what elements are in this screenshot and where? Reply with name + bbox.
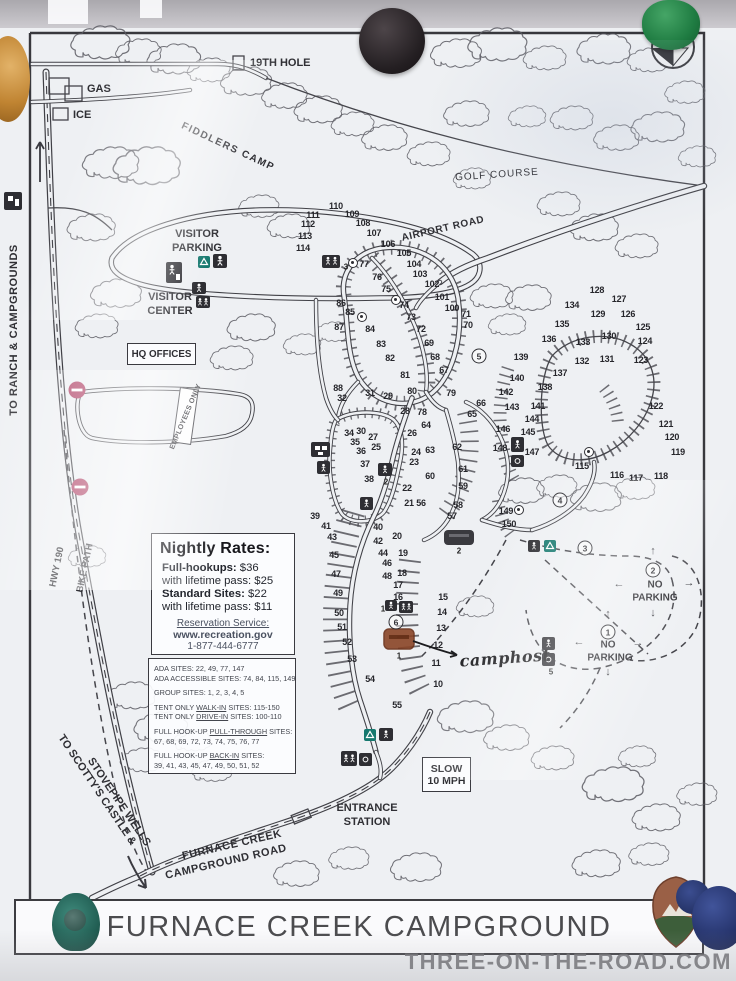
site-number-18: 18: [397, 568, 407, 578]
site-number-61: 61: [458, 464, 468, 474]
info-line: 67, 68, 69, 72, 73, 74, 75, 76, 77: [154, 737, 290, 747]
label-no-parking-1: NO: [601, 640, 616, 651]
restroom-icon: [378, 463, 392, 476]
site-number-48: 48: [382, 571, 392, 581]
site-number-17: 17: [393, 580, 403, 590]
site-number-36: 36: [356, 446, 366, 456]
site-number-50: 50: [334, 608, 344, 618]
visitor-center-icon: [166, 262, 182, 283]
site-number-19: 19: [398, 548, 408, 558]
site-number-26: 26: [407, 428, 417, 438]
site-number-20: 20: [392, 531, 402, 541]
ada-accessible-marker: [357, 312, 367, 322]
reservation-url: www.recreation.gov: [158, 629, 288, 641]
info-line: GROUP SITES: 1, 2, 3, 4, 5: [154, 688, 290, 698]
label-visitor-center: VISITOR: [148, 291, 192, 303]
recycle-icon: [544, 540, 556, 552]
site-number-145: 145: [521, 427, 535, 437]
to-ranch-arrow: [36, 142, 44, 182]
site-number-43: 43: [327, 532, 337, 542]
site-number-140: 140: [510, 373, 524, 383]
ada-accessible-marker: [348, 258, 358, 268]
label-entrance-station-2: STATION: [344, 816, 391, 828]
rates-title: Nightly Rates:: [160, 540, 288, 558]
restroom-icon: [192, 282, 206, 294]
site-number-63: 63: [425, 445, 435, 455]
site-number-134: 134: [565, 300, 579, 310]
site-info-box: ADA SITES: 22, 49, 77, 147 ADA ACCESSIBL…: [148, 658, 296, 774]
slow-10mph-sign: SLOW 10 MPH: [422, 757, 471, 792]
site-number-82: 82: [385, 353, 395, 363]
no-parking-arrow: →: [633, 637, 644, 649]
map-linework: .ln{stroke:#45454b;stroke-width:1.3;fill…: [0, 0, 736, 981]
label-visitor-parking-2: PARKING: [172, 242, 222, 254]
info-line: ADA SITES: 22, 49, 77, 147: [154, 664, 290, 674]
site-number-41: 41: [321, 521, 331, 531]
restroom-icon: [399, 601, 413, 613]
site-number-75: 75: [381, 284, 391, 294]
black-magnet: [359, 8, 425, 74]
site-number-54: 54: [365, 674, 375, 684]
site-number-28: 28: [400, 406, 410, 416]
site-number-127: 127: [612, 294, 626, 304]
site-number-104: 104: [407, 259, 421, 269]
site-number-13: 13: [436, 623, 446, 633]
rate-line: with lifetime pass: $11: [162, 601, 288, 613]
site-number-144: 144: [525, 414, 539, 424]
site-number-56: 56: [416, 498, 426, 508]
site-number-103: 103: [413, 269, 427, 279]
site-number-27: 27: [368, 432, 378, 442]
circled-number-4: 4: [553, 493, 568, 508]
icon-label: 1: [381, 605, 385, 614]
map-title: FURNACE CREEK CAMPGROUND: [107, 911, 612, 944]
site-number-148: 148: [493, 443, 507, 453]
no-parking-arrow: ↑: [650, 545, 656, 557]
info-line: FULL HOOK-UP BACK-IN SITES:: [154, 751, 290, 761]
ada-accessible-marker: [584, 447, 594, 457]
site-number-21: 21: [404, 498, 414, 508]
label-10mph: 10 MPH: [428, 775, 466, 787]
site-number-58: 58: [453, 500, 463, 510]
recycle-icon: [198, 256, 210, 268]
site-number-116: 116: [610, 470, 624, 480]
site-number-84: 84: [365, 324, 375, 334]
site-number-100: 100: [445, 303, 459, 313]
site-number-81: 81: [400, 370, 410, 380]
site-number-70: 70: [463, 320, 473, 330]
hiker-icon: [528, 540, 540, 552]
restroom-icon: [511, 437, 524, 452]
label-slow: SLOW: [431, 763, 463, 775]
site-number-10: 10: [433, 679, 443, 689]
site-number-123: 123: [634, 355, 648, 365]
site-number-76: 76: [372, 272, 382, 282]
label-no-parking-2: NO: [648, 580, 663, 591]
site-number-135: 135: [555, 319, 569, 329]
circled-number-3: 3: [578, 541, 593, 556]
site-number-141: 141: [531, 401, 545, 411]
no-parking-arrow: ↑: [605, 608, 611, 620]
site-number-23: 23: [409, 457, 419, 467]
site-number-53: 53: [347, 654, 357, 664]
site-number-72: 72: [416, 324, 426, 334]
site-number-118: 118: [654, 471, 668, 481]
site-number-80: 80: [407, 386, 417, 396]
reservation-service: Reservation Service: www.recreation.gov …: [158, 618, 288, 652]
site-number-45: 45: [329, 550, 339, 560]
site-number-40: 40: [373, 522, 383, 532]
restroom-icon: [196, 296, 210, 308]
site-number-42: 42: [373, 536, 383, 546]
site-number-132: 132: [575, 356, 589, 366]
site-number-129: 129: [591, 309, 605, 319]
site-number-39: 39: [310, 511, 320, 521]
map-title-banner: FURNACE CREEK CAMPGROUND: [14, 899, 704, 955]
site-number-113: 113: [298, 231, 312, 241]
water-icon: [511, 455, 524, 467]
site-number-115: 115: [575, 461, 589, 471]
label-gas: GAS: [87, 83, 111, 95]
site-number-25: 25: [371, 442, 381, 452]
hiker-icon: [379, 728, 393, 741]
site-number-16: 16: [393, 592, 403, 602]
photo-of-campground-map: .ln{stroke:#45454b;stroke-width:1.3;fill…: [0, 0, 736, 981]
site-number-31: 31: [365, 388, 375, 398]
label-no-parking-2b: PARKING: [632, 593, 677, 604]
label-to-ranch: TO RANCH & CAMPGROUNDS: [8, 244, 20, 416]
site-number-142: 142: [499, 387, 513, 397]
site-number-101: 101: [435, 292, 449, 302]
site-number-124: 124: [638, 336, 652, 346]
teal-pushpin: [52, 893, 100, 951]
label-visitor-center-2: CENTER: [147, 305, 192, 317]
site-number-78: 78: [417, 407, 427, 417]
site-number-117: 117: [629, 473, 643, 483]
site-number-12: 12: [433, 640, 443, 650]
site-number-136: 136: [542, 334, 556, 344]
circled-number-5: 5: [472, 349, 487, 364]
site-number-37: 37: [360, 459, 370, 469]
info-line: TENT ONLY WALK-IN SITES: 115-150: [154, 703, 290, 713]
info-line: ADA ACCESSIBLE SITES: 74, 84, 115, 149: [154, 674, 290, 684]
site-number-68: 68: [430, 352, 440, 362]
rate-line: Full-hookups: $36: [162, 562, 288, 574]
no-parking-arrow: →: [684, 577, 695, 589]
site-number-83: 83: [376, 339, 386, 349]
rate-line: Standard Sites: $22: [162, 588, 288, 600]
ada-accessible-marker: [514, 505, 524, 515]
site-number-62: 62: [452, 442, 462, 452]
site-number-51: 51: [337, 622, 347, 632]
site-number-106: 106: [381, 239, 395, 249]
site-number-107: 107: [367, 228, 381, 238]
info-line: TENT ONLY DRIVE-IN SITES: 100-110: [154, 712, 290, 722]
restroom-icon: [322, 255, 340, 268]
site-number-64: 64: [421, 420, 431, 430]
reservation-phone: 1-877-444-6777: [158, 641, 288, 652]
icon-label: 1: [397, 652, 401, 661]
site-number-11: 11: [431, 658, 440, 668]
hq-offices-box: HQ OFFICES: [127, 343, 196, 365]
site-number-60: 60: [425, 471, 435, 481]
site-number-121: 121: [659, 419, 673, 429]
nightly-rates-box: Nightly Rates: Full-hookups: $36 with li…: [151, 533, 295, 655]
site-number-57: 57: [447, 511, 457, 521]
site-number-65: 65: [467, 409, 477, 419]
site-number-88: 88: [333, 383, 343, 393]
site-number-126: 126: [621, 309, 635, 319]
site-number-128: 128: [590, 285, 604, 295]
restroom-icon: [341, 751, 357, 766]
site-number-30: 30: [356, 426, 366, 436]
site-number-147: 147: [525, 447, 539, 457]
site-number-77: 77: [359, 259, 369, 269]
site-number-85: 85: [345, 307, 355, 317]
no-parking-arrow: ↓: [605, 666, 611, 678]
green-pushpin: [642, 0, 700, 50]
site-number-87: 87: [334, 322, 344, 332]
icon-label: 2: [457, 547, 461, 556]
site-number-114: 114: [296, 243, 310, 253]
building-icon: [311, 442, 330, 457]
site-number-146: 146: [496, 424, 510, 434]
registration-icon: [4, 192, 22, 210]
site-number-66: 66: [476, 398, 486, 408]
site-number-122: 122: [649, 401, 663, 411]
site-number-120: 120: [665, 432, 679, 442]
site-number-49: 49: [333, 588, 343, 598]
camphost-site-highlight: [384, 629, 414, 649]
site-number-59: 59: [458, 481, 468, 491]
label-entrance-station: ENTRANCE: [336, 802, 397, 814]
circled-number-6: 6: [389, 615, 404, 630]
site-number-14: 14: [437, 607, 447, 617]
site-number-44: 44: [378, 548, 388, 558]
icon-label: 2: [384, 478, 388, 487]
site-number-139: 139: [514, 352, 528, 362]
site-number-29: 29: [383, 391, 393, 401]
label-19th-hole: 19TH HOLE: [250, 57, 311, 69]
site-number-130: 130: [602, 331, 616, 341]
label-ice: ICE: [73, 109, 91, 121]
site-number-112: 112: [301, 219, 315, 229]
site-number-125: 125: [636, 322, 650, 332]
no-parking-arrow: ←: [614, 578, 625, 590]
site-number-133: 133: [576, 337, 590, 347]
site-number-38: 38: [364, 474, 374, 484]
group-shelter-icon: [444, 530, 474, 545]
site-number-69: 69: [424, 338, 434, 348]
watermark: THREE-ON-THE-ROAD.COM: [405, 949, 732, 975]
rate-line: with lifetime pass: $25: [162, 575, 288, 587]
site-number-15: 15: [438, 592, 448, 602]
site-number-105: 105: [397, 248, 411, 258]
reservation-label: Reservation Service:: [158, 618, 288, 629]
site-number-55: 55: [392, 700, 402, 710]
site-number-22: 22: [402, 483, 412, 493]
site-number-79: 79: [446, 388, 456, 398]
site-number-24: 24: [411, 447, 421, 457]
label-no-parking-1b: PARKING: [587, 653, 632, 664]
site-number-150: 150: [502, 519, 516, 529]
site-number-67: 67: [439, 365, 449, 375]
site-number-102: 102: [425, 279, 439, 289]
no-parking-arrow: ↓: [650, 607, 656, 619]
site-number-149: 149: [499, 506, 513, 516]
recycle-icon: [364, 729, 376, 741]
no-parking-arrow: ←: [574, 636, 585, 648]
site-number-32: 32: [337, 393, 347, 403]
info-line: 39, 41, 43, 45, 47, 49, 50, 51, 52: [154, 761, 290, 771]
restroom-icon: [360, 497, 373, 510]
circled-number-2: 2: [646, 563, 661, 578]
site-number-52: 52: [342, 637, 352, 647]
site-number-138: 138: [538, 382, 552, 392]
circled-number-1: 1: [601, 625, 616, 640]
site-number-119: 119: [671, 447, 685, 457]
icon-label: 5: [549, 668, 553, 677]
water-icon: [359, 753, 372, 766]
label-visitor-parking: VISITOR: [175, 228, 219, 240]
site-number-47: 47: [331, 569, 341, 579]
hiker-icon: [213, 254, 227, 268]
site-number-137: 137: [553, 368, 567, 378]
site-number-71: 71: [461, 309, 471, 319]
site-number-73: 73: [406, 312, 416, 322]
site-number-108: 108: [356, 218, 370, 228]
site-number-131: 131: [600, 354, 614, 364]
label-hq-offices: HQ OFFICES: [132, 349, 192, 360]
site-number-46: 46: [382, 558, 392, 568]
site-number-110: 110: [329, 201, 343, 211]
info-line: FULL HOOK-UP PULL-THROUGH SITES:: [154, 727, 290, 737]
site-number-143: 143: [505, 402, 519, 412]
restroom-icon: [317, 461, 330, 474]
ada-accessible-marker: [391, 295, 401, 305]
